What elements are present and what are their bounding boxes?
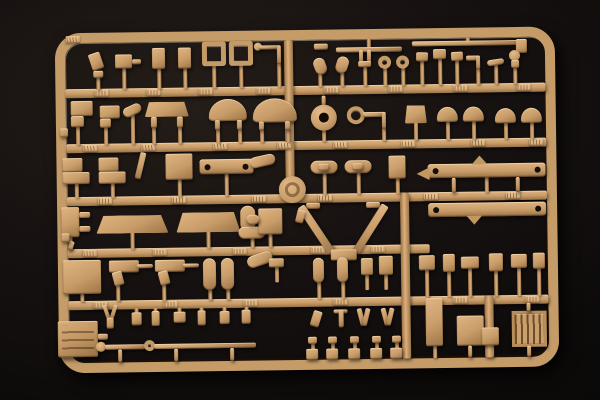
part-number-tab [453,297,467,304]
pistol-part-b [155,260,185,272]
u-bracket-base-gate [363,66,367,86]
part-number-tab [311,247,325,254]
dome-part-b-gate [471,121,475,140]
axle-rod-a [105,344,145,350]
scissor-a2 [362,308,371,327]
capsule-c1-gate [317,282,321,299]
panel-box [58,321,98,358]
part-number-tab [529,139,543,146]
seat-frame-a-gate [212,65,216,88]
dome-part-d [521,108,542,123]
seat-frame-b [229,41,253,66]
fender-b-foot1 [259,121,264,130]
gearbox-part-gate [122,67,126,89]
grille-gate-up [526,303,530,312]
fender-b-foot2-gate [286,129,290,142]
bottle-part-a [203,258,216,290]
step-box [457,315,484,345]
part-number-tab [388,86,402,93]
tiny-part-2 [152,311,160,326]
seat-part [88,51,105,71]
t-post-3-head [350,336,359,343]
fitting-c1 [361,258,373,275]
tiny-part-6 [242,310,251,324]
dome-part-c-gate [503,122,507,139]
fork-y-base [107,318,114,329]
pistol-bar-a [137,264,153,268]
u-bracket-base [358,61,371,67]
wing-part-a-gate [130,114,134,144]
part-number-tab [83,145,97,152]
rod-gate-1 [118,349,122,362]
rail-gate-1 [452,178,456,193]
winged-link [249,153,277,169]
knob-body-gate [513,67,517,84]
bracket-r3-gate [468,268,472,297]
step-box-gate [468,346,472,358]
seat-foot [93,71,103,78]
ring-part-a-gate [383,68,387,86]
block-pipe [258,208,282,234]
big-box-gate [80,293,84,302]
bar-small [314,44,328,50]
bottle-part-b [221,258,234,290]
t-post-5-foot [390,348,402,359]
capsule-c2 [337,257,348,282]
pistol-bar-b [183,263,199,267]
sprue-group [0,0,600,400]
part-number-tab [146,89,160,96]
seat-frame-a [202,41,226,66]
seat-frame-b-gate [239,65,243,88]
tall-box [425,298,443,346]
tiny-part-3 [174,312,186,323]
dome-part-b [463,106,484,121]
shelf-foot-b-gate [178,127,182,144]
part-number-tab [506,192,520,199]
faucet-v [339,309,344,327]
block-pipe-arm [246,215,259,225]
fitting-c2 [379,256,393,275]
bracket-r3 [461,257,479,269]
fender-b-foot2 [285,121,290,130]
rod-gate-2 [174,349,178,362]
t-post-4-foot [370,348,382,359]
step-box-2 [482,327,499,345]
boat-core-b [352,163,362,170]
chassis-rail-a [428,163,546,179]
step-bracket-a [71,101,93,116]
l-bracket-a2-gate [74,183,78,198]
tall-box-gate [433,345,437,358]
part-number-tab [453,85,467,92]
left-nub-b [61,233,69,242]
long-rod [412,40,524,47]
chassis-rail-b [428,202,546,218]
sprue-parts-layer [0,0,600,400]
boat-part-b-gate [356,172,360,194]
step-bracket-a2 [71,116,84,127]
fitting-c1-gate [365,274,369,290]
hook-c [309,310,322,328]
main-runner-h5 [68,295,548,311]
left-nub-a [60,128,68,137]
pistol-part-a [109,260,139,272]
plate-part [165,153,192,179]
part-number-tab [525,296,539,303]
capsule-c2-gate [341,281,345,298]
seat-foot-gate [96,77,100,90]
bottle-part-a-gate [208,289,212,300]
t-post-4-head [372,336,381,343]
big-box [63,260,101,295]
caliper-arm-b [79,226,90,232]
part-number-tab [153,249,167,256]
part-number-tab [333,141,347,148]
plate-part-gate [177,179,181,197]
fender-a [209,99,247,122]
part-number-tab [401,140,415,147]
part-number-tab [243,300,257,307]
flat-part-gate [494,64,498,84]
part-number-tab [83,250,97,257]
ring-part-a [378,56,391,69]
ring-arm-post-gate [382,128,386,141]
fitting-c2-gate [384,274,388,290]
part-number-tab [198,88,212,95]
fender-b-foot1-gate [260,130,264,143]
beam-b [176,212,240,233]
leaf-part-a [312,56,329,76]
block-pipe-gate [268,233,272,247]
part-number-tab [94,90,108,97]
pistol-grip-a [111,271,124,287]
knob-body [511,60,519,68]
bracket-r5-gate [517,267,521,296]
fender-a-foot2 [237,120,242,130]
post-head-b [433,49,446,59]
bracket-r6-gate [537,268,541,296]
pistol-grip-b [157,270,170,286]
beam-a [96,215,168,234]
ring-part-b [396,55,409,68]
bracket-r1 [419,255,435,270]
t-post-5-head [392,336,401,343]
t-post-2-head [328,336,337,343]
bottle-part-b-gate [226,289,230,300]
gearbox-arm [132,59,141,64]
hub-part-gate [322,130,326,142]
s-link [135,152,147,180]
main-runner-h1 [65,83,545,99]
l-bracket-b2-gate [110,183,114,198]
tall-part-a [152,48,165,69]
ring-part-b-gate [401,68,405,86]
bracket-r2-gate [447,271,451,297]
l-bracket-b2 [99,171,126,183]
post-head-a [416,52,428,61]
bracket-r2 [443,254,455,272]
gearbox-part [115,54,132,68]
bell-part [405,105,427,123]
step-bracket-b [100,106,120,119]
axle-rod-b [154,343,256,349]
step-bracket-a2-gate [75,126,79,145]
beam-b-gate [206,231,210,248]
v-mount-left [306,203,320,209]
bracket-r6 [533,253,545,269]
part-number-tab [277,142,291,149]
t-post-2-foot [326,348,338,359]
link-beam [199,159,253,175]
dome-part-a [437,107,458,122]
rail-a-peak [471,155,487,164]
dome-part-a-gate [445,121,449,140]
hook-left [295,209,306,223]
scissor-b2 [386,307,395,326]
wing-part-b2-gate [274,266,278,282]
fender-a-foot1 [215,120,220,130]
tall-part-a-gate [157,68,161,89]
tiny-part-4 [198,310,206,325]
canister-part [388,156,405,179]
part-number-tab [233,248,247,255]
bracket-r1-gate [425,269,429,297]
leaf-part-b [334,55,350,75]
part-number-tab [252,195,266,202]
boat-core-a [318,164,328,171]
hub-part [311,104,337,130]
bracket-r4 [489,253,503,271]
canister-part-gate [395,178,399,194]
leaf-part-b-gate [340,72,344,86]
main-runner-v-bottom [400,192,411,358]
elbow-pipe-2-gate [250,238,254,248]
post-head-c-gate [455,60,459,85]
post-head-a-gate [420,60,424,85]
tall-part-b [178,48,191,69]
bracket-r4-gate [494,270,498,296]
part-number-tab [333,298,347,305]
rail-b-notch [466,215,482,224]
chassis-rail-a-gate [485,176,489,192]
t-post-1-foot [306,349,318,360]
part-number-tab [256,87,270,94]
post-head-b-gate [438,58,442,85]
bell-part-gate [414,122,418,140]
part-number-tab [471,139,485,146]
shelf-foot-a-gate [152,127,156,144]
shelf-part [145,102,189,118]
panel-box-arm [98,334,108,340]
part-number-tab [98,198,112,205]
step-bracket-b2 [100,119,111,128]
caliper-arm-a [79,212,90,218]
step-bracket-b2-gate [103,127,107,145]
rail-gate-2 [516,177,520,192]
bracket-r5 [511,254,527,268]
capsule-c1 [313,258,324,283]
post-head-c [451,52,463,62]
pistol-grip-a-gate [116,285,120,302]
rail-a-end [417,167,430,180]
beam-a-gate [130,232,134,249]
part-number-tab [66,36,80,43]
part-number-tab [318,195,332,202]
t-post-1-head [308,337,317,344]
rod-gate-3 [230,348,234,361]
part-number-tab [424,193,438,200]
tiny-part-1 [132,312,142,325]
part-number-tab [163,301,177,308]
dome-part-c [495,108,516,123]
tall-part-b-gate [183,68,187,89]
boat-part-a-gate [322,173,326,195]
l-bracket-b1 [98,158,118,172]
rod-arm-v-gate [277,63,281,87]
sprue-photo: Photograph of a tan sand-colored injecti… [0,0,600,400]
pistol-grip-b-gate [162,284,166,301]
part-number-tab [213,143,227,150]
shelf-foot-b [177,117,183,128]
part-number-tab [141,144,155,151]
link-beam-gate [225,173,229,196]
grille-part [512,311,547,347]
ring-arm-post [382,112,386,129]
grille-gate-dn [527,346,531,357]
t-post-3-foot [348,348,360,359]
part-number-tab [371,246,385,253]
flat-part [487,58,505,67]
tiny-part-5 [220,311,230,324]
part-number-tab [516,84,530,91]
elbow-part-v [476,55,480,69]
dome-part-d-gate [529,122,533,139]
l-bracket-a1 [62,158,82,172]
rod-arm-v [277,45,281,64]
wing-part-b2 [269,258,284,267]
l-bracket-a2 [63,172,90,184]
leaf-part-a-gate [318,74,322,87]
shelf-foot-a [151,117,157,128]
part-number-tab [324,86,338,93]
elbow-part-v-gate [476,68,480,84]
part-number-tab [172,197,186,204]
fender-a-foot2-gate [238,129,242,143]
fender-a-foot1-gate [216,129,220,143]
